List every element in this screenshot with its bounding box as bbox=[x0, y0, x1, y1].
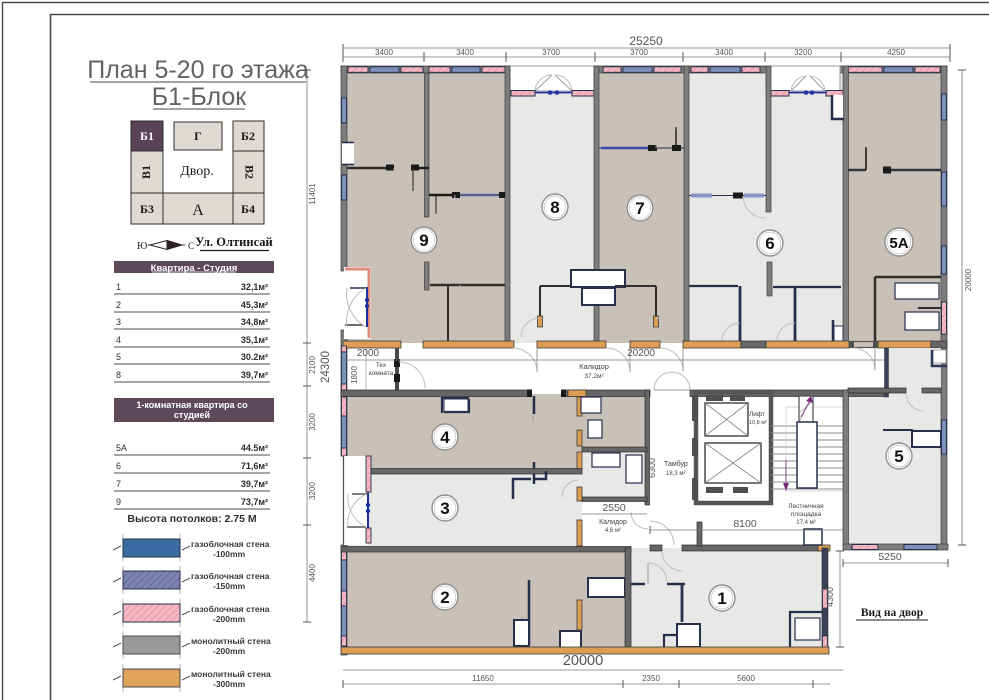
svg-text:20000: 20000 bbox=[964, 268, 973, 291]
svg-text:3: 3 bbox=[440, 499, 449, 518]
svg-text:План 5-20 го этажа: План 5-20 го этажа bbox=[87, 56, 309, 84]
svg-text:9: 9 bbox=[419, 231, 428, 250]
svg-text:39,7м²: 39,7м² bbox=[241, 479, 268, 489]
svg-text:8: 8 bbox=[116, 370, 121, 380]
svg-text:2100: 2100 bbox=[308, 356, 317, 374]
svg-text:Б3: Б3 bbox=[140, 202, 154, 216]
svg-text:4: 4 bbox=[440, 428, 450, 447]
svg-text:Г: Г bbox=[194, 129, 202, 143]
svg-text:1800: 1800 bbox=[350, 366, 359, 384]
svg-text:5250: 5250 bbox=[878, 551, 902, 563]
svg-text:Лестничная: Лестничная bbox=[788, 503, 824, 510]
svg-text:Вид на двор: Вид на двор bbox=[861, 607, 923, 619]
svg-text:3200: 3200 bbox=[794, 48, 812, 57]
svg-text:73,7м²: 73,7м² bbox=[241, 497, 268, 507]
svg-text:Двор.: Двор. bbox=[180, 164, 214, 179]
svg-text:6: 6 bbox=[765, 234, 774, 253]
svg-text:37,2м²: 37,2м² bbox=[584, 373, 604, 380]
svg-text:Ю: Ю bbox=[137, 241, 147, 252]
svg-text:5А: 5А bbox=[116, 443, 127, 453]
svg-text:газоблочная стена: газоблочная стена bbox=[191, 571, 270, 581]
svg-text:площадка: площадка bbox=[791, 511, 822, 518]
svg-text:3400: 3400 bbox=[715, 48, 733, 57]
svg-text:1: 1 bbox=[717, 589, 726, 608]
svg-text:Калидор: Калидор bbox=[579, 362, 609, 371]
svg-text:11650: 11650 bbox=[472, 674, 494, 683]
svg-text:5: 5 bbox=[116, 352, 121, 362]
svg-text:2550: 2550 bbox=[602, 502, 626, 514]
svg-text:комната: комната bbox=[369, 370, 394, 377]
svg-text:Лифт: Лифт bbox=[749, 411, 765, 418]
svg-text:71,6м²: 71,6м² bbox=[241, 461, 268, 471]
svg-text:6: 6 bbox=[116, 461, 121, 471]
svg-text:-150mm: -150mm bbox=[213, 581, 246, 591]
svg-text:1: 1 bbox=[116, 282, 121, 292]
svg-text:4: 4 bbox=[116, 335, 121, 345]
svg-text:2000: 2000 bbox=[357, 348, 380, 359]
svg-text:3400: 3400 bbox=[456, 48, 474, 57]
svg-text:34,8м²: 34,8м² bbox=[241, 317, 268, 327]
svg-text:20000: 20000 bbox=[563, 653, 603, 669]
svg-text:45,3м²: 45,3м² bbox=[241, 300, 268, 310]
svg-text:24300: 24300 bbox=[320, 351, 332, 383]
svg-text:Высота потолков: 2.75 М: Высота потолков: 2.75 М bbox=[127, 513, 257, 525]
svg-text:4300: 4300 bbox=[825, 587, 835, 607]
svg-text:1-комнатная квартира со: 1-комнатная квартира со bbox=[136, 400, 248, 410]
svg-text:Калидор: Калидор bbox=[599, 519, 627, 526]
svg-text:2350: 2350 bbox=[642, 674, 660, 683]
svg-text:Б2: Б2 bbox=[241, 129, 255, 143]
svg-text:18,3 м²: 18,3 м² bbox=[666, 471, 685, 477]
svg-text:Ул. Олтинсай: Ул. Олтинсай bbox=[195, 235, 272, 249]
svg-text:32,1м²: 32,1м² bbox=[241, 282, 268, 292]
svg-text:В2: В2 bbox=[242, 165, 256, 179]
svg-text:8100: 8100 bbox=[733, 518, 757, 530]
svg-text:30.2м²: 30.2м² bbox=[241, 352, 268, 362]
svg-text:5А: 5А bbox=[889, 235, 908, 252]
svg-text:10,8 м²: 10,8 м² bbox=[749, 420, 767, 426]
svg-text:С: С bbox=[188, 241, 194, 251]
svg-text:-200mm: -200mm bbox=[213, 614, 246, 624]
svg-text:студией: студией bbox=[174, 410, 210, 420]
svg-text:3700: 3700 bbox=[630, 48, 648, 57]
svg-text:Тех: Тех bbox=[376, 362, 387, 369]
svg-text:5600: 5600 bbox=[737, 674, 755, 683]
svg-text:35,1м²: 35,1м² bbox=[241, 335, 268, 345]
svg-text:3200: 3200 bbox=[308, 413, 317, 431]
svg-text:7: 7 bbox=[635, 199, 644, 218]
svg-text:Б1: Б1 bbox=[140, 129, 154, 143]
svg-text:монолитный стена: монолитный стена bbox=[191, 669, 271, 679]
svg-text:8: 8 bbox=[550, 198, 559, 217]
svg-text:-300mm: -300mm bbox=[213, 679, 246, 689]
svg-text:17,4 м²: 17,4 м² bbox=[796, 520, 815, 526]
svg-text:2: 2 bbox=[116, 300, 121, 310]
svg-text:25250: 25250 bbox=[629, 34, 663, 48]
svg-text:газоблочная стена: газоблочная стена bbox=[191, 604, 270, 614]
svg-text:Б4: Б4 bbox=[241, 202, 255, 216]
svg-text:-200mm: -200mm bbox=[213, 646, 246, 656]
svg-text:монолитный стена: монолитный стена bbox=[191, 636, 271, 646]
svg-text:44.5м²: 44.5м² bbox=[241, 443, 268, 453]
svg-text:А: А bbox=[192, 202, 204, 219]
svg-text:В1: В1 bbox=[139, 165, 153, 179]
svg-text:39,7м²: 39,7м² bbox=[241, 370, 268, 380]
svg-text:6300: 6300 bbox=[647, 458, 657, 478]
svg-text:7: 7 bbox=[116, 479, 121, 489]
svg-text:20200: 20200 bbox=[627, 348, 655, 359]
svg-text:газоблочная стена: газоблочная стена bbox=[191, 539, 270, 549]
svg-text:-100mm: -100mm bbox=[213, 549, 246, 559]
svg-text:5: 5 bbox=[894, 447, 903, 466]
svg-text:3200: 3200 bbox=[308, 482, 317, 500]
svg-text:4400: 4400 bbox=[308, 564, 317, 582]
svg-text:4250: 4250 bbox=[887, 48, 905, 57]
svg-text:3400: 3400 bbox=[375, 48, 393, 57]
svg-text:Б1-Блок: Б1-Блок bbox=[152, 83, 248, 111]
svg-text:Тамбур: Тамбур bbox=[664, 460, 688, 468]
svg-text:11401: 11401 bbox=[308, 183, 317, 205]
svg-text:3: 3 bbox=[116, 317, 121, 327]
svg-text:9: 9 bbox=[116, 497, 121, 507]
svg-text:2: 2 bbox=[440, 588, 449, 607]
svg-text:3700: 3700 bbox=[542, 48, 560, 57]
svg-text:4,6 м²: 4,6 м² bbox=[605, 528, 621, 534]
